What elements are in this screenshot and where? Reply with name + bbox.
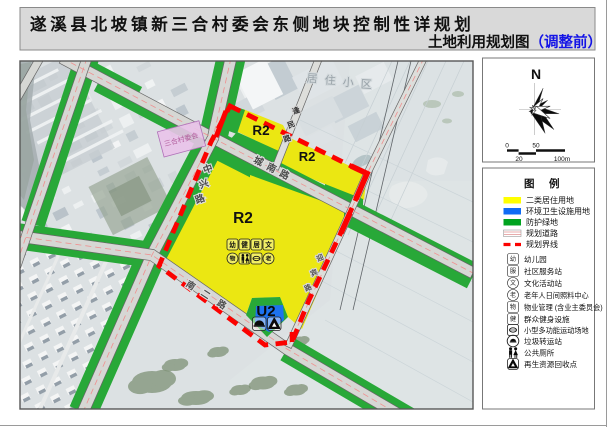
svg-text:服: 服 — [510, 268, 516, 275]
svg-text:文化活动站: 文化活动站 — [524, 278, 562, 288]
svg-text:N: N — [531, 66, 541, 82]
svg-text:土地利用规划图（调整前）: 土地利用规划图（调整前） — [428, 33, 602, 51]
svg-text:老年人日间照料中心: 老年人日间照料中心 — [524, 291, 589, 300]
svg-text:社区服务站: 社区服务站 — [524, 266, 562, 276]
svg-text:住: 住 — [324, 73, 336, 88]
svg-text:二类居住用地: 二类居住用地 — [526, 195, 574, 205]
svg-text:老: 老 — [266, 255, 272, 263]
svg-text:垃圾转运站: 垃圾转运站 — [524, 336, 562, 346]
svg-text:环境卫生设施用地: 环境卫生设施用地 — [526, 206, 590, 216]
svg-text:居: 居 — [253, 241, 260, 249]
svg-text:U2: U2 — [256, 303, 275, 320]
svg-text:幼: 幼 — [229, 240, 236, 249]
svg-text:小型多功能运动场地: 小型多功能运动场地 — [524, 326, 589, 335]
svg-text:物: 物 — [510, 303, 516, 311]
svg-text:再生资源回收点: 再生资源回收点 — [524, 359, 578, 369]
svg-text:老: 老 — [510, 291, 516, 299]
svg-text:防护绿地: 防护绿地 — [526, 217, 558, 227]
svg-text:区: 区 — [360, 79, 372, 92]
svg-text:居: 居 — [306, 73, 318, 86]
svg-text:公共厕所: 公共厕所 — [524, 348, 555, 358]
svg-text:50: 50 — [532, 143, 540, 150]
svg-text:0: 0 — [505, 143, 509, 150]
svg-text:R2: R2 — [299, 149, 316, 164]
svg-text:幼儿园: 幼儿园 — [524, 254, 547, 264]
svg-text:例: 例 — [549, 177, 560, 190]
svg-text:100m: 100m — [554, 156, 570, 163]
svg-text:20: 20 — [515, 156, 523, 163]
svg-text:物业管理 (含业主委员会): 物业管理 (含业主委员会) — [524, 303, 603, 312]
svg-text:规划道路: 规划道路 — [526, 228, 558, 238]
svg-text:小: 小 — [342, 76, 354, 90]
svg-text:群众健身设施: 群众健身设施 — [524, 314, 570, 324]
svg-text:规划界线: 规划界线 — [526, 239, 558, 249]
svg-text:R2: R2 — [233, 210, 253, 227]
svg-text:R2: R2 — [252, 123, 269, 138]
svg-text:文: 文 — [510, 279, 516, 287]
svg-text:物: 物 — [230, 255, 236, 263]
svg-text:幼: 幼 — [510, 255, 516, 263]
svg-text:图: 图 — [524, 178, 535, 190]
svg-text:健: 健 — [510, 315, 516, 323]
svg-text:文: 文 — [265, 240, 272, 249]
svg-text:健: 健 — [241, 240, 248, 249]
svg-text:遂溪县北坡镇新三合村委会东侧地块控制性详规划: 遂溪县北坡镇新三合村委会东侧地块控制性详规划 — [30, 14, 474, 34]
